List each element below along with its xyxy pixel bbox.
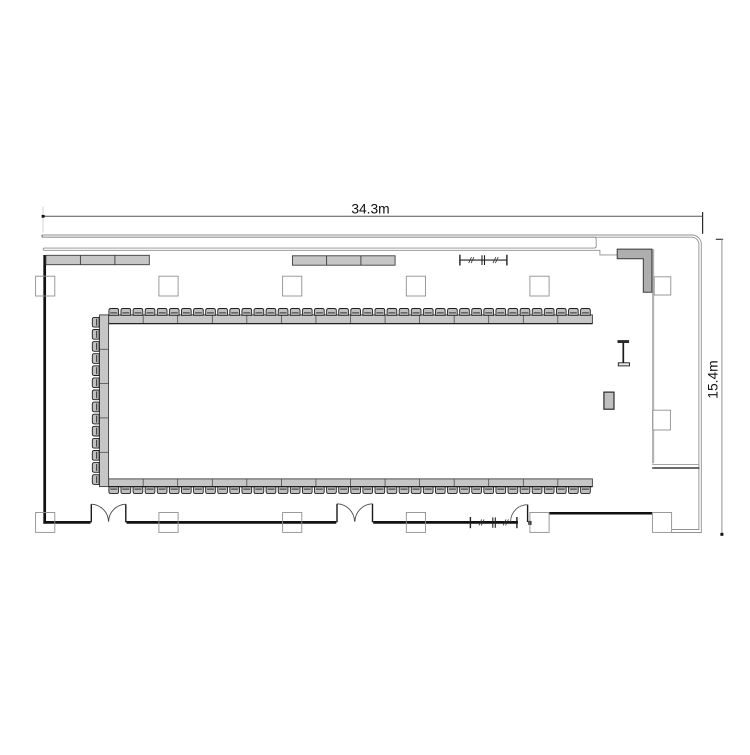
svg-text:34.3m: 34.3m: [351, 202, 389, 217]
svg-text:15.4m: 15.4m: [705, 360, 720, 398]
